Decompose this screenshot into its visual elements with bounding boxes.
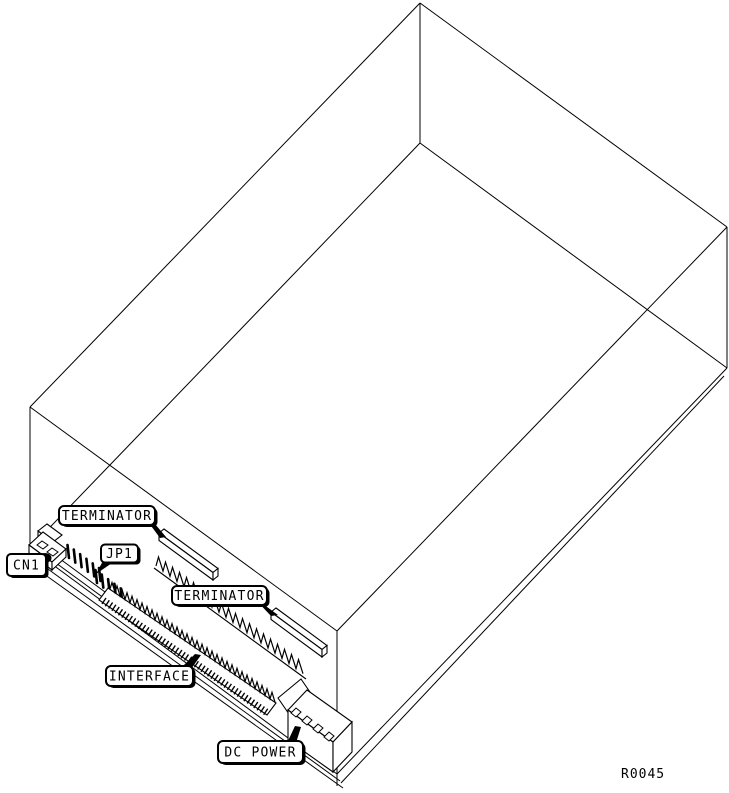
callout-jp1: JP1 (96, 545, 141, 575)
interface-label: INTERFACE (109, 670, 190, 685)
edge-top-right (420, 3, 727, 227)
terminator-socket-1 (159, 529, 218, 580)
jp1-label: JP1 (106, 547, 133, 562)
figure-canvas: TERMINATOR JP1 CN1 TERMINATOR INTERFACE … (0, 0, 729, 793)
figure-ref: R0045 (621, 767, 665, 782)
cn1-label: CN1 (13, 559, 40, 574)
rim-right-2 (341, 376, 724, 783)
edge-top-left (30, 3, 420, 407)
drive-connector-diagram: TERMINATOR JP1 CN1 TERMINATOR INTERFACE … (0, 0, 729, 793)
pcb-rim (30, 368, 727, 788)
terminator-mid-label: TERMINATOR (174, 589, 264, 604)
callout-terminator-mid: TERMINATOR (172, 586, 278, 616)
callout-terminator-top: TERMINATOR (59, 506, 166, 538)
terminator-2-front (271, 612, 322, 657)
edge-bottom-rear-left (30, 143, 420, 548)
callout-cn1: CN1 (7, 553, 52, 578)
interface-body (99, 588, 276, 715)
edge-bottom-rear-right (420, 143, 727, 368)
callout-dc-power: DC POWER (218, 726, 306, 765)
terminator-top-label: TERMINATOR (62, 509, 152, 524)
dc-power-label: DC POWER (224, 746, 296, 761)
terminator-2-top (271, 608, 327, 650)
terminator-1-front (159, 533, 213, 580)
terminator-1-top (159, 529, 218, 573)
